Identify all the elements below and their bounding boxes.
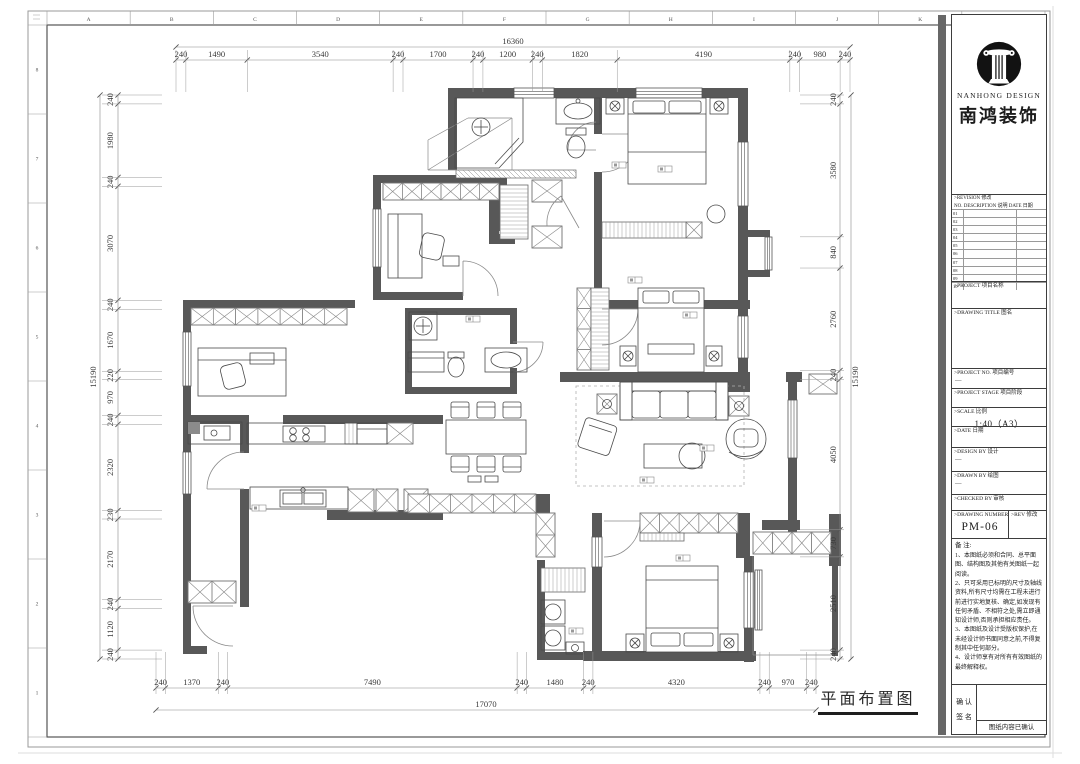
dim-label: 240 <box>392 49 405 59</box>
side-desk <box>198 348 286 396</box>
notes-title: 备 注: <box>955 541 1043 551</box>
wall <box>594 98 602 134</box>
door-swing <box>463 261 498 296</box>
field-label: >DESIGN BY 设计 <box>952 448 1046 456</box>
wall <box>510 308 517 344</box>
field-date: >DATE 日期 <box>952 426 1046 447</box>
revision-row: 02 <box>952 217 1046 225</box>
wall <box>592 513 602 537</box>
wall <box>373 183 381 209</box>
grid-number: 5 <box>36 335 39 341</box>
grid-number: 2 <box>36 602 39 608</box>
wall <box>405 387 517 394</box>
wall <box>405 308 517 315</box>
revision-row: 01 <box>952 209 1046 217</box>
notes-box: 备 注: 1、本图纸必须和合同、总平面图、结构图及其他有关图纸一起阅读。 2、只… <box>952 538 1046 684</box>
grid-number: 1 <box>36 691 39 697</box>
grid-letter: C <box>253 17 257 23</box>
dim-label: 2760 <box>828 311 838 328</box>
wall <box>744 556 754 572</box>
grid-number: 6 <box>36 246 39 252</box>
column-logo-icon <box>976 41 1022 87</box>
dim-label: 16360 <box>502 36 523 46</box>
title-block: NANHONG DESIGN 南鸿装饰 >REVISION 修改 NO. DES… <box>951 14 1047 735</box>
wall <box>537 652 587 660</box>
dim-label: 3070 <box>105 235 115 252</box>
revision-row: 05 <box>952 241 1046 249</box>
bed-third <box>646 566 718 652</box>
dim-label: 240 <box>531 49 544 59</box>
wall <box>448 88 514 98</box>
dim-label: 840 <box>828 246 838 259</box>
dim-label: 3540 <box>312 49 329 59</box>
shelf-strip <box>602 222 686 238</box>
wall <box>240 415 249 453</box>
grid-letter: I <box>753 17 755 23</box>
revision-table: >REVISION 修改 NO. DESCRIPTION 说明 DATE 日期 … <box>952 194 1046 281</box>
kitchen-counter-top <box>247 423 387 444</box>
field-label: >PROJECT NO. 项目编号 <box>952 369 1046 377</box>
dim-label: 1480 <box>547 677 564 687</box>
field-project-no: >PROJECT NO. 项目编号 — <box>952 368 1046 388</box>
washer-dryer <box>541 600 584 654</box>
dim-label: 2510 <box>828 595 838 612</box>
window <box>765 237 772 270</box>
wall <box>554 88 636 98</box>
note-item: 2、只可采用已标明的尺寸及轴线资料,所有尺寸均需在工程未进行前进行实地复核、确定… <box>955 580 1043 626</box>
grid-reference-band: ABCDEFGHIJK87654321 <box>28 11 1045 737</box>
field-project: >PROJECT 项目名称 <box>952 281 1046 308</box>
wall <box>183 386 191 418</box>
field-project-stage: >PROJECT STAGE 项目阶段 <box>952 388 1046 407</box>
window <box>755 570 762 630</box>
window <box>183 452 191 494</box>
shelf-strip <box>541 568 585 592</box>
wall <box>373 292 463 300</box>
grid-number: 3 <box>36 513 39 519</box>
dim-label: 1120 <box>105 621 115 638</box>
window <box>514 88 554 98</box>
field-scale: >SCALE 比例 1:40（A3） <box>952 407 1046 426</box>
door-swing-layer <box>193 122 640 646</box>
door-swing <box>604 521 640 557</box>
wall <box>592 567 602 653</box>
dim-label: 1200 <box>499 49 516 59</box>
wall <box>746 230 770 237</box>
dim-label: 15190 <box>850 366 860 387</box>
field-value: — <box>952 456 1046 463</box>
dim-label: 220 <box>105 369 115 382</box>
floor-plan-canvas: ABCDEFGHIJK87654321 <box>0 0 1080 764</box>
field-value: — <box>952 480 1046 487</box>
field-label: >PROJECT 项目名称 <box>952 282 1046 290</box>
confirm-note: 图纸内容已确认 <box>977 720 1046 734</box>
field-design-by: >DESIGN BY 设计 — <box>952 447 1046 471</box>
coffee-table <box>644 443 705 469</box>
logo-text-cn: 南鸿装饰 <box>952 102 1046 128</box>
dim-label: 730 <box>828 537 838 550</box>
confirm-label: 确 认 <box>952 697 976 707</box>
wall <box>560 372 722 382</box>
door-swing <box>513 342 543 372</box>
wall <box>448 98 457 170</box>
dim-label: 4320 <box>668 677 685 687</box>
grid-letter: E <box>420 17 424 23</box>
window <box>788 400 797 458</box>
dim-label: 1490 <box>208 49 225 59</box>
wall <box>738 308 748 316</box>
wall <box>738 358 748 382</box>
grid-letter: B <box>170 17 174 23</box>
window <box>738 316 748 358</box>
dim-label: 15190 <box>88 366 98 387</box>
dim-label: 4190 <box>695 49 712 59</box>
armchair-left <box>577 417 618 457</box>
field-label: >PROJECT STAGE 项目阶段 <box>952 389 1046 397</box>
study-desk <box>388 214 459 278</box>
field-label: >SCALE 比例 <box>952 408 1046 416</box>
drawing-sheet: ABCDEFGHIJK87654321 <box>0 0 1080 764</box>
wall <box>536 494 550 513</box>
confirm-label: 签 名 <box>952 712 976 722</box>
window <box>636 88 702 98</box>
wall <box>594 172 602 300</box>
field-label: >DRAWN BY 绘图 <box>952 472 1046 480</box>
dim-label: 17070 <box>475 699 496 709</box>
bathroom-vanity <box>556 98 600 124</box>
field-label: >CHECKED BY 审核 <box>952 495 1046 503</box>
field-drawn-by: >DRAWN BY 绘图 — <box>952 471 1046 494</box>
drawing-number-value: PM-06 <box>952 521 1008 533</box>
window <box>592 537 602 567</box>
shower-enclosure <box>455 98 523 168</box>
company-logo: NANHONG DESIGN 南鸿装饰 <box>952 15 1046 128</box>
dining-table <box>446 402 526 482</box>
dim-label: 240 <box>175 49 188 59</box>
wall <box>788 382 797 400</box>
dim-label: 1700 <box>430 49 447 59</box>
field-checked-by: >CHECKED BY 审核 <box>952 494 1046 510</box>
grid-letter: K <box>918 17 922 23</box>
field-drawing-title: >DRAWING TITLE 图名 <box>952 308 1046 368</box>
revision-row: 06 <box>952 249 1046 257</box>
note-item: 4、设计师享有对所有有效图纸的最终解释权。 <box>955 654 1043 673</box>
revision-row: 04 <box>952 233 1046 241</box>
wall <box>183 300 355 308</box>
dim-label: 240 <box>788 49 801 59</box>
window <box>183 332 191 386</box>
dim-label: 970 <box>105 391 115 404</box>
revision-row: 08 <box>952 266 1046 274</box>
wall <box>738 206 748 234</box>
entry-sink <box>188 422 242 444</box>
wall <box>240 489 249 607</box>
dim-label: 1370 <box>183 677 200 687</box>
grid-number: 7 <box>36 157 39 163</box>
grid-letter: D <box>336 17 340 23</box>
plan-title: 平面布置图 <box>818 685 918 715</box>
wall <box>183 646 207 654</box>
wall <box>405 308 412 394</box>
dim-label: 1670 <box>105 332 115 349</box>
grid-letter: F <box>503 17 506 23</box>
dim-label: 980 <box>814 49 827 59</box>
shelf-strip <box>640 533 684 541</box>
wall <box>702 88 748 98</box>
grid-number: 8 <box>36 68 39 74</box>
door-swing <box>207 452 244 489</box>
shelf-strip <box>345 423 357 444</box>
field-label: >DRAWING TITLE 图名 <box>952 309 1046 317</box>
round-chair <box>707 205 725 223</box>
sofa <box>620 382 728 420</box>
grid-letter: J <box>836 17 839 23</box>
signature-area <box>977 685 1046 720</box>
dim-label: 240 <box>472 49 485 59</box>
dim-label: 1820 <box>571 49 588 59</box>
dim-label: 1980 <box>105 132 115 149</box>
field-label: >DATE 日期 <box>952 427 1046 435</box>
revision-row: 07 <box>952 258 1046 266</box>
bed-second <box>638 288 704 372</box>
shelf-strip <box>591 288 609 370</box>
revision-head1: >REVISION 修改 <box>952 195 1046 203</box>
note-item: 3、本图纸及设计受版权保护,在未经设计师书面同意之前,不得复制其中任何部分。 <box>955 626 1043 654</box>
door-swing <box>568 122 596 150</box>
grid-letter: G <box>586 17 590 23</box>
dim-label: 7490 <box>364 677 381 687</box>
dim-label: 4050 <box>828 446 838 463</box>
wall <box>583 651 756 661</box>
grid-number: 4 <box>36 424 39 430</box>
wall <box>183 604 191 650</box>
grid-letter: H <box>669 17 673 23</box>
window <box>744 572 754 628</box>
window <box>373 209 381 267</box>
dim-label: 970 <box>782 677 795 687</box>
wall <box>786 372 802 382</box>
logo-text-en: NANHONG DESIGN <box>952 91 1046 100</box>
drawing-number-box: >DRAWING NUMBER 图号 PM-06 >REV 修改 <box>952 510 1046 538</box>
confirm-box: 确 认 签 名 图纸内容已确认 <box>952 684 1046 734</box>
drawing-number-label: >DRAWING NUMBER 图号 <box>952 511 1008 519</box>
door-swing <box>193 606 233 646</box>
note-item: 1、本图纸必须和合同、总平面图、结构图及其他有关图纸一起阅读。 <box>955 552 1043 580</box>
field-value: — <box>952 377 1046 384</box>
dim-label: 2320 <box>105 459 115 476</box>
wall <box>183 308 191 332</box>
grid-letter: A <box>87 17 91 23</box>
dim-label: 3580 <box>828 162 838 179</box>
wall <box>746 270 770 277</box>
dim-label: 2170 <box>105 551 115 568</box>
rev-label: >REV 修改 <box>1009 511 1046 519</box>
window <box>738 142 748 206</box>
dim-label: 240 <box>839 49 852 59</box>
wall <box>738 98 748 142</box>
armchair-right <box>726 419 766 459</box>
revision-row: 03 <box>952 225 1046 233</box>
wall <box>788 458 797 522</box>
